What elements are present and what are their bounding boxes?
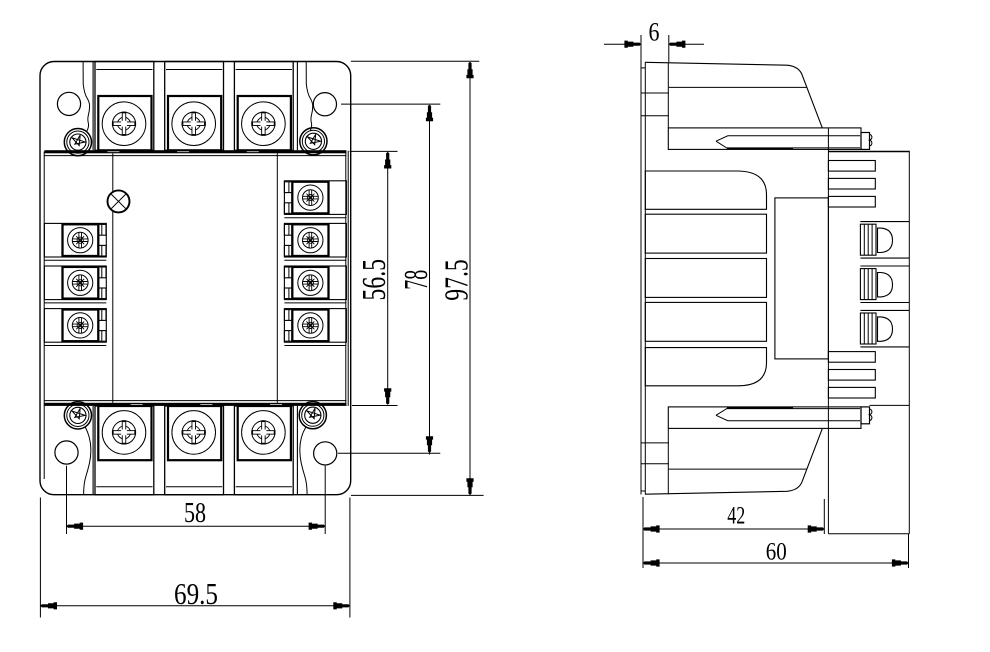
- svg-text:97.5: 97.5: [439, 259, 476, 301]
- svg-text:69.5: 69.5: [174, 576, 218, 611]
- svg-text:6: 6: [649, 18, 660, 47]
- svg-text:78: 78: [398, 270, 435, 290]
- svg-text:42: 42: [727, 503, 745, 530]
- svg-text:60: 60: [766, 539, 787, 566]
- svg-text:56.5: 56.5: [356, 259, 393, 301]
- svg-text:58: 58: [184, 497, 206, 529]
